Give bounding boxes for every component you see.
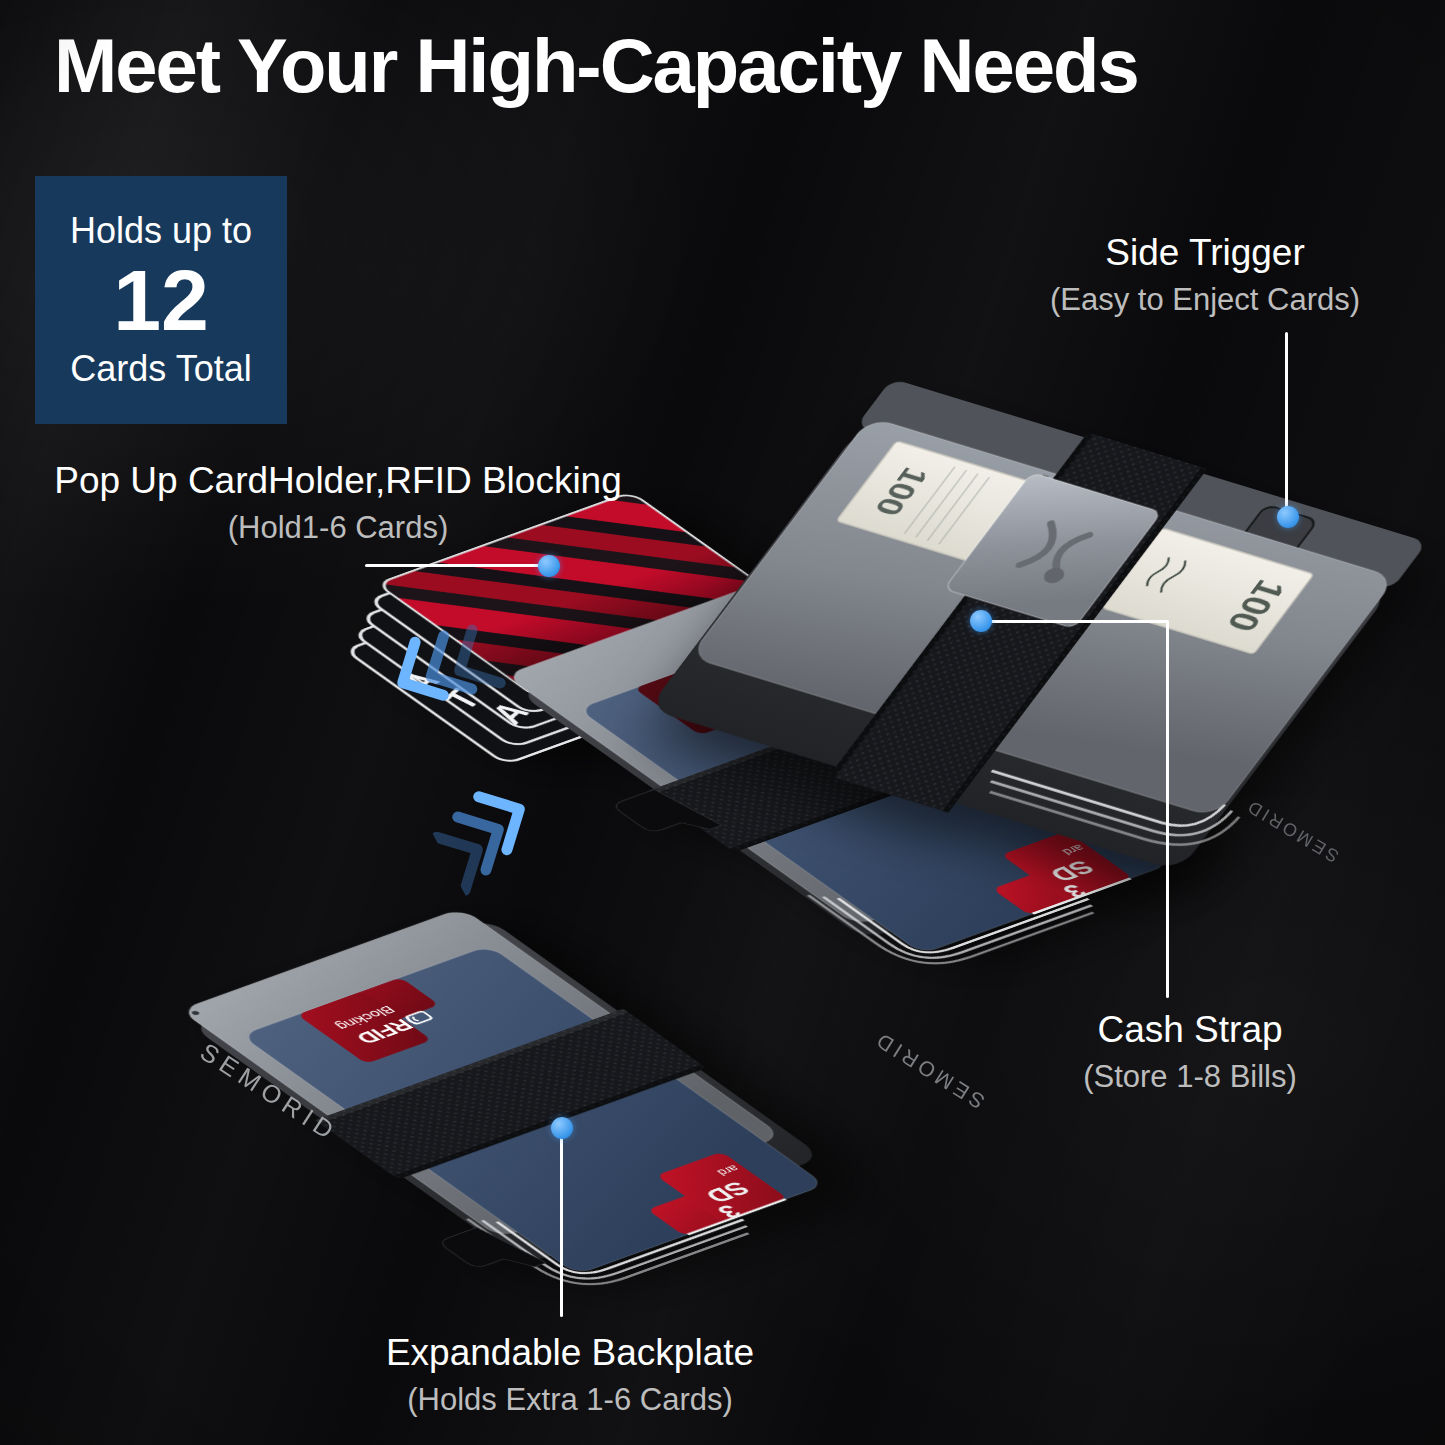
page-title: Meet Your High-Capacity Needs xyxy=(54,22,1138,109)
expandable-backplate-leader-line xyxy=(560,1133,563,1317)
product-infographic: A T A SEMORID xyxy=(0,0,1445,1445)
capacity-badge-number: 12 xyxy=(113,251,209,350)
callout-cash-strap-label: Cash Strap xyxy=(970,1005,1410,1055)
callout-expandable-backplate-label: Expandable Backplate xyxy=(350,1328,790,1378)
callout-side-trigger-label: Side Trigger xyxy=(985,228,1425,278)
side-trigger-callout-dot xyxy=(1277,506,1299,528)
capacity-badge-line1: Holds up to xyxy=(70,211,252,251)
side-trigger-leader-line xyxy=(1285,332,1288,516)
callout-pop-up: Pop Up CardHolder,RFID Blocking (Hold1-6… xyxy=(18,456,658,549)
cash-strap-callout-dot xyxy=(970,610,992,632)
pop-up-leader-line xyxy=(365,564,549,567)
callout-pop-up-label: Pop Up CardHolder,RFID Blocking xyxy=(18,456,658,506)
callout-expandable-backplate-sub: (Holds Extra 1-6 Cards) xyxy=(350,1378,790,1421)
capacity-badge: Holds up to 12 Cards Total xyxy=(35,176,287,424)
callout-side-trigger-sub: (Easy to Enject Cards) xyxy=(985,278,1425,321)
callout-pop-up-sub: (Hold1-6 Cards) xyxy=(18,506,658,549)
callout-expandable-backplate: Expandable Backplate (Holds Extra 1-6 Ca… xyxy=(350,1328,790,1421)
cash-strap-leader-line-h xyxy=(981,620,1168,623)
callout-cash-strap-sub: (Store 1-8 Bills) xyxy=(970,1055,1410,1098)
cash-strap-leader-line-v xyxy=(1166,620,1169,998)
capacity-badge-line2: Cards Total xyxy=(70,349,251,389)
callout-cash-strap: Cash Strap (Store 1-8 Bills) xyxy=(970,1005,1410,1098)
callout-side-trigger: Side Trigger (Easy to Enject Cards) xyxy=(985,228,1425,321)
expandable-backplate-callout-dot xyxy=(551,1117,573,1139)
pop-up-callout-dot xyxy=(538,555,560,577)
